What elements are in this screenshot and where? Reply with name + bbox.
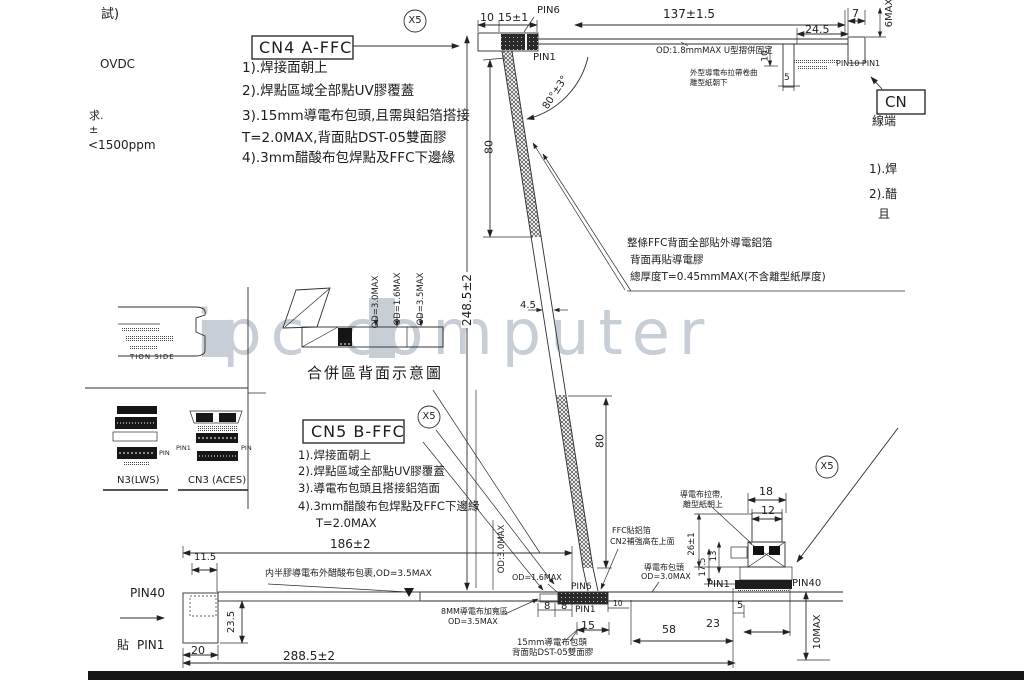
pin40-label: PIN40 [130, 587, 165, 599]
cn5-note-1: 1).焊接面朝上 [298, 450, 371, 462]
cover-note-2: OD=3.0MAX [641, 573, 691, 581]
cn3-aces-caption: CN3 (ACES) [188, 476, 246, 486]
pin1-label-small: PIN1 [176, 445, 191, 452]
ffc-foil-note-2: CN2補強高在上面 [610, 538, 675, 546]
head-note-1: 15mm導電布包頭 [517, 639, 587, 648]
fragment-text: <1500ppm [88, 139, 156, 151]
cn4-note-3b: T=2.0MAX,背面貼DST-05雙面膠 [242, 132, 446, 146]
dim-4-5: 4.5 [520, 301, 536, 311]
dim-8b: 8 [561, 602, 567, 612]
ffc-foil-note-1: FFC貼鋁箔 [612, 527, 651, 535]
right-note-2: 2).醋 [869, 188, 897, 200]
dim-80-upper: 80 [484, 140, 495, 154]
od-16-label: OD=1.6MAX [512, 574, 562, 582]
cn4-note-4: 4).3mm醋酸布包焊點及FFC下邊緣 [242, 152, 455, 166]
dim-13: 13 [710, 551, 719, 562]
dim-10: 10 [480, 12, 494, 23]
x5-marker: X5 [422, 412, 435, 422]
wrap-note: 内半膠導電布外醋酸布包裹,OD=3.5MAX [265, 570, 432, 579]
pin10-pin1-label: PIN10 PIN1 [836, 60, 880, 68]
dim-26: 26±1 [688, 532, 697, 555]
dim-12: 12 [761, 505, 775, 516]
rconn-pin1: PIN1 [707, 580, 730, 590]
rconn-pin40: PIN40 [792, 579, 821, 589]
dim-18: 18 [759, 486, 773, 497]
fragment-text: ± [89, 124, 98, 135]
dim-23: 23 [706, 618, 720, 629]
dim-23-5: 23.5 [227, 609, 237, 635]
cn-box-label: CN [885, 95, 907, 110]
right-connector [694, 428, 898, 592]
dim-7: 7 [852, 8, 859, 19]
fragment-text: OVDC [100, 58, 135, 70]
cn4-note-3: 3).15mm導電布包頭,且需與鋁箔搭接 [242, 110, 470, 124]
pull-tape-note-1: 導電布拉帶, [680, 491, 723, 499]
pin6-label: PIN6 [537, 6, 560, 16]
foil-note-2: 背面再貼導電膠 [630, 255, 704, 266]
watermark-blocks [202, 298, 395, 358]
dim-10-small: 10 [613, 600, 623, 608]
head-note-2: 背面貼DST-05雙面膠 [512, 649, 593, 658]
tie-char: 貼 [117, 639, 129, 651]
dim-15: 15±1 [498, 12, 528, 23]
dim-20: 20 [191, 645, 205, 656]
od-1-8-note: OD:1.8mmMAX U型摺併固定 [656, 47, 773, 56]
merge-od35: OD=3.5MAX [417, 273, 426, 326]
fragment-text: 試) [101, 8, 119, 21]
pin1-label: PIN1 [533, 53, 556, 63]
tape-note-2: 離型紙朝下 [690, 79, 728, 87]
pin1-label-mid: PIN1 [575, 606, 596, 615]
dim-58: 58 [662, 624, 676, 635]
dim-11-5: 11.5 [194, 553, 216, 563]
dim-10-fold: 10 [762, 50, 771, 61]
pin-label-small: PIN [241, 445, 252, 452]
pin-label-small: PIN [159, 450, 170, 457]
widen-note-2: OD=3.5MAX [448, 618, 498, 626]
pin1-label-bottom: PIN1 [137, 639, 164, 651]
pull-tape-note-2: 離型紙朝上 [683, 501, 723, 509]
right-note-1: 1).焊 [869, 163, 897, 175]
cn4-note-1: 1).焊接面朝上 [242, 62, 328, 76]
cn4-title: CN4 A-FFC [259, 40, 352, 56]
pin6-label-bottom: PIN6 [571, 583, 592, 592]
fragment-text: 求. [89, 110, 104, 121]
dim-17-5: 17.5 [699, 558, 708, 577]
dim-186: 186±2 [330, 538, 371, 550]
dim-10max: 10MAX [813, 614, 823, 649]
diagonal-cable [483, 51, 905, 591]
line-end-label: 線端 [872, 115, 896, 127]
x5-marker: X5 [820, 462, 833, 472]
dim-5-bottom: 5 [737, 601, 743, 611]
cn5-note-4b: T=2.0MAX [316, 518, 377, 530]
cn4-note-2: 2).焊點區域全部點UV膠覆蓋 [242, 85, 414, 99]
foil-note-1: 整條FFC背面全部貼外導電鋁箔 [627, 238, 772, 249]
dim-288-5: 288.5±2 [283, 650, 335, 662]
dim-15-bottom: 15 [581, 620, 595, 631]
cn5-note-4: 4).3mm醋酸布包焊點及FFC下邊緣 [298, 501, 479, 513]
ffc-engineering-drawing: ipc computer [0, 0, 1024, 680]
tape-note-1: 外型導電布拉帶卷曲 [690, 69, 758, 77]
cn5-note-2: 2).焊點區域全部點UV膠覆蓋 [298, 466, 445, 478]
dim-80-lower: 80 [595, 434, 606, 448]
x5-marker: X5 [408, 16, 421, 26]
dim-137: 137±1.5 [663, 8, 715, 20]
widen-note-1: 8MM導電布加寬區 [441, 608, 508, 616]
od-30-vert: OD:3.0MAX [498, 525, 507, 574]
merge-caption: 合併區背面示意圖 [307, 366, 443, 381]
dim-24-5: 24.5 [805, 24, 830, 35]
foil-note-3: 總厚度T=0.45mmMAX(不含離型紙厚度) [630, 272, 826, 283]
cn5-title: CN5 B-FFC [311, 424, 405, 440]
right-note-3: 且 [878, 208, 890, 220]
merge-od16: OD=1.6MAX [394, 273, 403, 326]
dim-8a: 8 [544, 602, 550, 612]
dim-248-5: 248.5±2 [461, 272, 473, 328]
cn3-lws-caption: N3(LWS) [117, 476, 160, 486]
side-label: TION SIDE [130, 354, 175, 361]
dim-5-fold: 5 [784, 74, 790, 83]
sheet-edge-bar [88, 671, 1024, 680]
cn5-note-3: 3).導電布包頭且搭接鋁箔面 [298, 483, 440, 495]
dim-6max: 6MAX [885, 0, 895, 27]
cover-note-1: 導電布包頭 [644, 564, 684, 572]
merge-od30: OD=3.0MAX [372, 276, 381, 329]
